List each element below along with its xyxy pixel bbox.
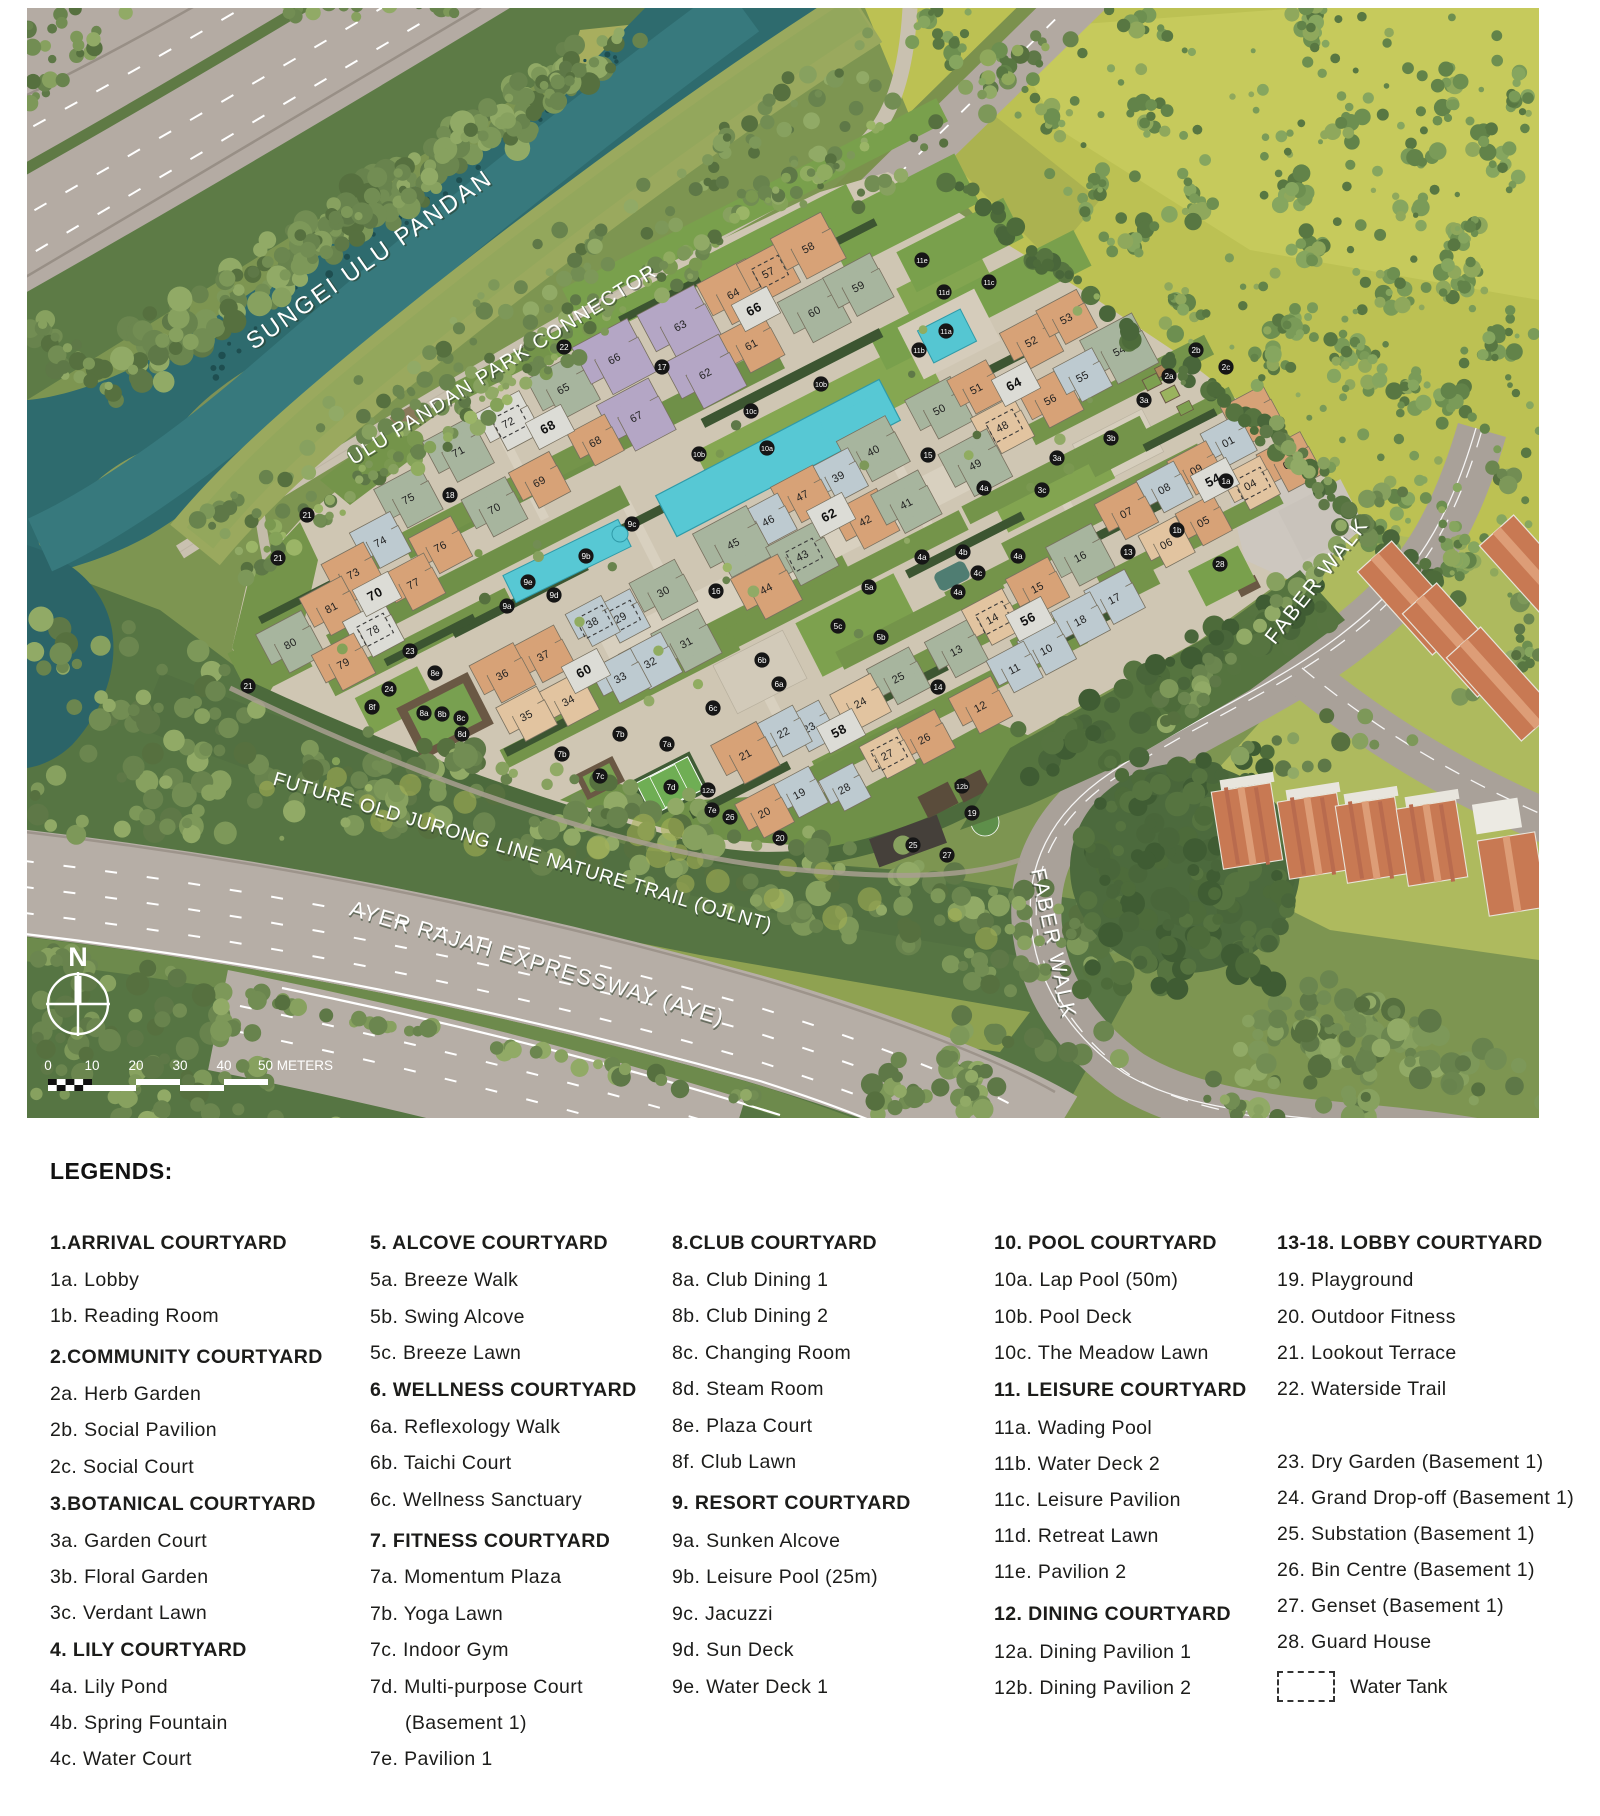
svg-text:5a: 5a: [864, 583, 874, 592]
svg-text:12a: 12a: [702, 786, 714, 795]
svg-text:20: 20: [775, 834, 785, 843]
svg-text:9e: 9e: [523, 578, 533, 587]
svg-text:8b: 8b: [437, 710, 447, 719]
svg-text:13: 13: [1123, 548, 1133, 557]
svg-text:8f: 8f: [369, 703, 377, 712]
svg-text:N: N: [68, 942, 88, 972]
svg-text:4b: 4b: [958, 548, 968, 557]
svg-text:11b: 11b: [913, 346, 924, 355]
svg-text:7a: 7a: [662, 740, 672, 749]
svg-text:2a: 2a: [1164, 372, 1174, 381]
svg-text:3c: 3c: [1038, 486, 1047, 495]
svg-text:3b: 3b: [1106, 434, 1116, 443]
svg-text:3a: 3a: [1139, 396, 1149, 405]
svg-text:2c: 2c: [1222, 363, 1231, 372]
svg-text:8a: 8a: [419, 709, 429, 718]
svg-text:21: 21: [273, 554, 283, 563]
svg-text:9d: 9d: [549, 591, 559, 600]
svg-text:11c: 11c: [983, 278, 994, 287]
svg-text:7c: 7c: [596, 772, 605, 781]
svg-text:6c: 6c: [709, 704, 718, 713]
svg-text:50 METERS: 50 METERS: [258, 1058, 333, 1073]
svg-text:22: 22: [559, 343, 569, 352]
svg-text:6a: 6a: [774, 680, 784, 689]
svg-text:4a: 4a: [953, 588, 963, 597]
svg-text:8c: 8c: [457, 714, 466, 723]
svg-text:10b: 10b: [693, 450, 705, 459]
svg-text:6b: 6b: [757, 656, 767, 665]
svg-text:10c: 10c: [745, 407, 757, 416]
svg-text:4a: 4a: [1013, 552, 1023, 561]
svg-text:21: 21: [302, 511, 312, 520]
svg-text:5c: 5c: [834, 622, 843, 631]
svg-text:9a: 9a: [502, 602, 512, 611]
svg-text:21: 21: [243, 682, 253, 691]
svg-text:25: 25: [908, 841, 918, 850]
svg-text:40: 40: [216, 1058, 231, 1073]
svg-text:7b: 7b: [557, 750, 567, 759]
svg-text:10: 10: [84, 1058, 99, 1073]
svg-text:24: 24: [384, 685, 394, 694]
svg-text:9c: 9c: [628, 520, 637, 529]
svg-text:7d: 7d: [666, 783, 676, 792]
svg-text:5b: 5b: [876, 633, 886, 642]
svg-text:18: 18: [445, 491, 455, 500]
svg-text:19: 19: [967, 809, 977, 818]
svg-text:8e: 8e: [430, 669, 440, 678]
svg-text:3a: 3a: [1052, 454, 1062, 463]
svg-text:4c: 4c: [974, 569, 983, 578]
svg-text:27: 27: [942, 851, 952, 860]
svg-text:4a: 4a: [917, 553, 927, 562]
svg-text:11a: 11a: [940, 327, 951, 336]
svg-text:1b: 1b: [1172, 526, 1182, 535]
svg-text:23: 23: [405, 647, 415, 656]
svg-text:4a: 4a: [979, 484, 989, 493]
svg-text:0: 0: [44, 1058, 52, 1073]
svg-text:26: 26: [725, 813, 735, 822]
svg-text:11d: 11d: [938, 288, 949, 297]
svg-text:1a: 1a: [1221, 477, 1231, 486]
svg-text:7b: 7b: [615, 730, 625, 739]
svg-text:11e: 11e: [916, 256, 927, 265]
svg-text:10a: 10a: [761, 444, 773, 453]
svg-text:17: 17: [657, 363, 667, 372]
svg-text:16: 16: [711, 587, 721, 596]
svg-text:9b: 9b: [581, 552, 591, 561]
svg-text:20: 20: [128, 1058, 143, 1073]
svg-text:7e: 7e: [707, 806, 717, 815]
svg-text:15: 15: [923, 451, 933, 460]
svg-text:14: 14: [933, 683, 943, 692]
svg-text:12b: 12b: [956, 782, 968, 791]
svg-text:30: 30: [172, 1058, 187, 1073]
svg-text:28: 28: [1215, 560, 1225, 569]
svg-text:8d: 8d: [457, 730, 467, 739]
svg-text:10b: 10b: [815, 380, 827, 389]
svg-text:2b: 2b: [1191, 346, 1201, 355]
